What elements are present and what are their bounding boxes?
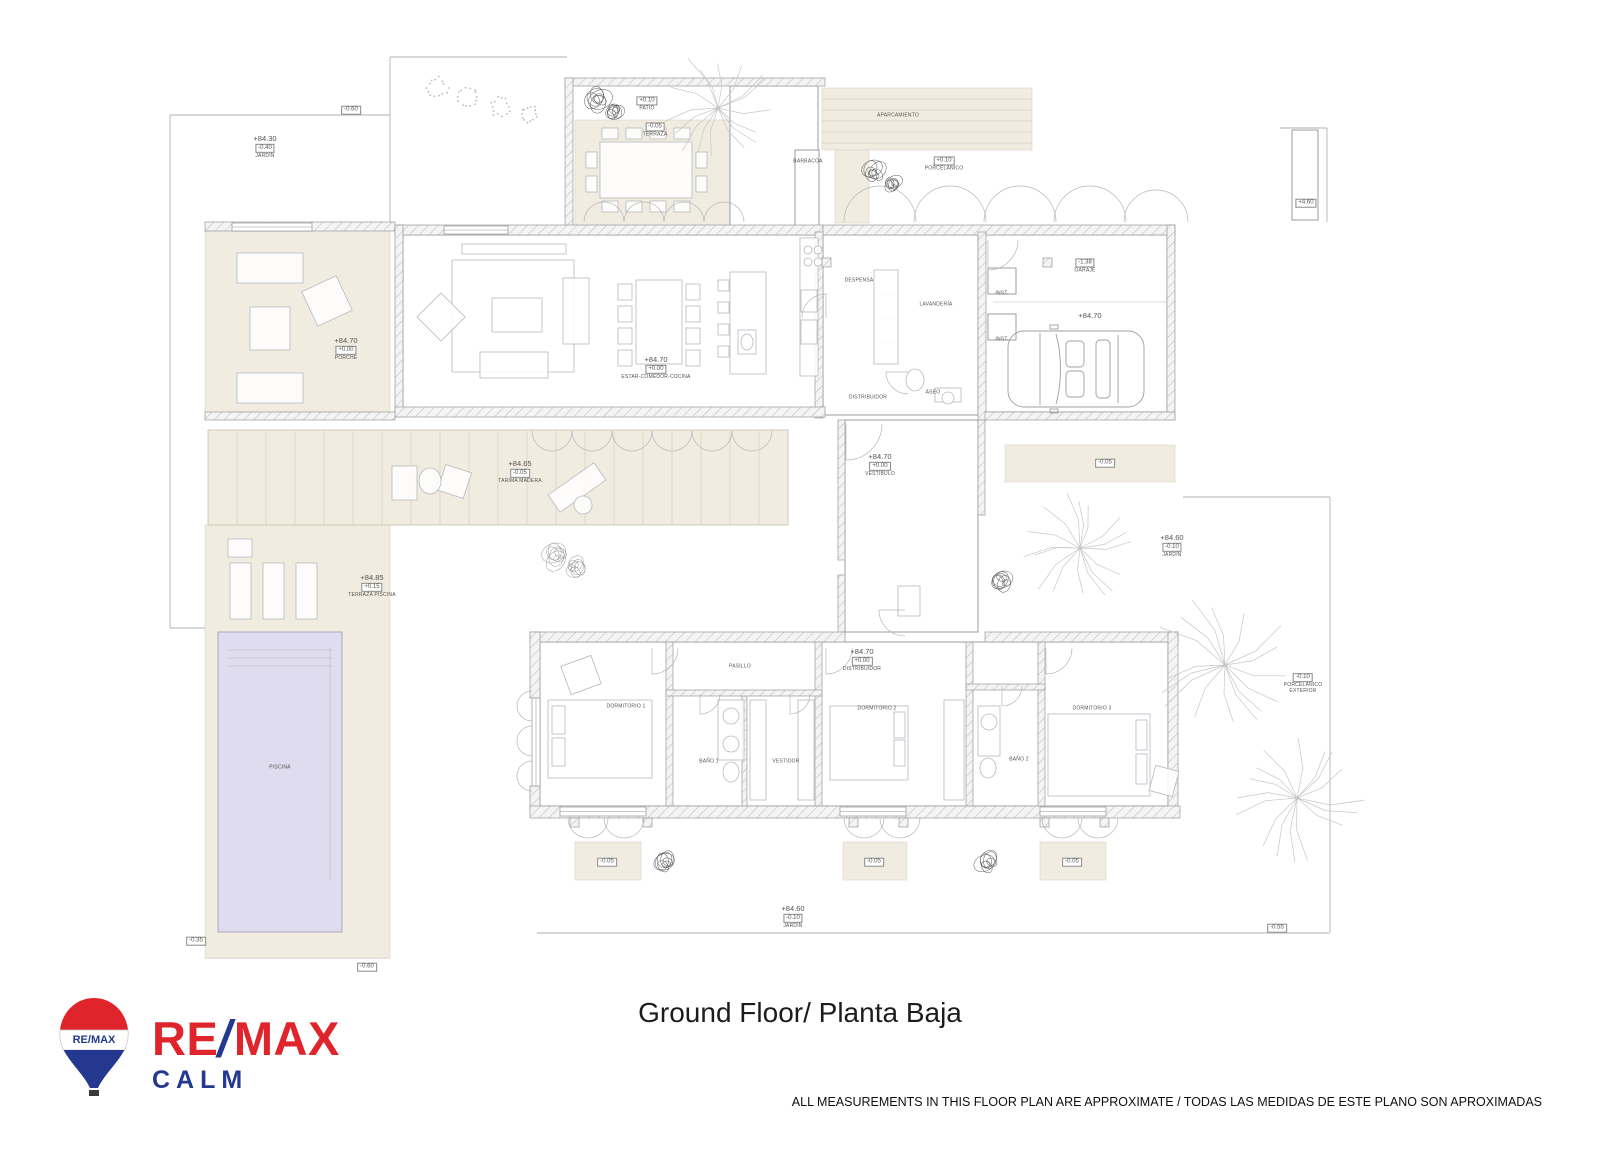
wall [1167, 225, 1175, 420]
wall [966, 642, 973, 806]
balloon-text: RE/MAX [73, 1034, 116, 1046]
wall [838, 575, 845, 635]
wall [985, 412, 1175, 420]
tree-branches [1225, 626, 1281, 665]
shrub-dots [474, 103, 476, 105]
wall [530, 632, 540, 698]
shrub-dots [448, 87, 450, 89]
shrub-dots [469, 105, 471, 107]
wall [823, 225, 1175, 235]
balloon-basket [89, 1090, 99, 1096]
tree-branches [1192, 600, 1225, 665]
furniture [906, 369, 924, 391]
door-arc [604, 818, 644, 838]
pool-water [218, 632, 342, 932]
furniture [942, 392, 954, 404]
shrub-dots [532, 119, 534, 121]
furniture [237, 253, 303, 283]
furniture [898, 586, 920, 616]
furniture [626, 128, 642, 139]
room [988, 268, 1016, 294]
furniture [894, 740, 905, 766]
shrub-dots [494, 101, 496, 103]
wall [978, 232, 986, 420]
shrub-dots [527, 122, 529, 124]
shrub-dots [501, 116, 503, 118]
tree-branches [1195, 665, 1226, 717]
outdoor-area [843, 842, 907, 880]
shrub-dots [523, 119, 525, 121]
page-title: Ground Floor/ Planta Baja [0, 997, 1600, 1029]
furniture [296, 563, 317, 619]
tree-branches [1080, 542, 1131, 550]
furniture [263, 563, 284, 619]
furniture [650, 128, 666, 139]
shrub-dots [460, 89, 462, 91]
tree-branches [1035, 548, 1081, 556]
shrub-dots [476, 96, 478, 98]
furniture [894, 712, 905, 738]
shrub-dots [462, 104, 464, 106]
wall [899, 818, 908, 827]
outdoor-area [1005, 445, 1175, 482]
furniture [480, 352, 548, 378]
shrub-dots [506, 113, 508, 115]
furniture [230, 563, 251, 619]
plant-scribble [882, 177, 900, 195]
tree-branches [1225, 665, 1278, 702]
furniture [978, 706, 1000, 756]
plant-scribble [564, 559, 588, 580]
shrub-dots [458, 91, 460, 93]
wall [395, 407, 825, 417]
furniture [730, 272, 766, 374]
furniture [618, 350, 632, 366]
shrub-dots [475, 100, 477, 102]
furniture [419, 468, 441, 494]
door-arc [984, 186, 1056, 222]
shrub-dots [469, 88, 471, 90]
floor-plan: +84.30-0.40JARDÍN-0.60+0.10PATIO-0.05TER… [0, 0, 1600, 985]
furniture [804, 258, 812, 266]
outdoor-area [575, 842, 641, 880]
wall [966, 684, 1045, 690]
tree-branches [1043, 507, 1080, 549]
shrub-dots [457, 96, 459, 98]
tree-branches [1250, 779, 1297, 798]
wall [666, 642, 673, 806]
furniture [618, 328, 632, 344]
furniture [563, 278, 589, 344]
furniture [718, 346, 729, 357]
wall [838, 420, 845, 560]
furniture [814, 258, 822, 266]
wall [1038, 642, 1045, 806]
shrub-dots [527, 107, 529, 109]
shrub-dots [522, 117, 524, 119]
shrub-dots [493, 114, 495, 116]
furniture [804, 246, 812, 254]
wall [565, 78, 573, 230]
furniture [600, 142, 692, 198]
furniture [1136, 754, 1147, 784]
shrub-dots [534, 106, 536, 108]
furniture [981, 714, 997, 730]
door-arc [914, 186, 986, 222]
tree-branches [1237, 793, 1297, 798]
furniture [392, 466, 417, 500]
tree-branches [1212, 608, 1225, 665]
shrub-dots [505, 98, 507, 100]
furniture [618, 284, 632, 300]
shrub-dots [536, 116, 538, 118]
shrub-dots [438, 76, 440, 78]
wall [205, 412, 395, 420]
plant-scribble [538, 539, 568, 566]
shrub-dots [431, 80, 433, 82]
shrub-dots [433, 95, 435, 97]
tree-branches [1023, 547, 1080, 557]
furniture [237, 373, 303, 403]
furniture [723, 762, 739, 782]
wall [570, 818, 579, 827]
shrub-dots [509, 110, 511, 112]
furniture [750, 700, 766, 800]
shrub-dots [457, 100, 459, 102]
shrub-dots [426, 87, 428, 89]
furniture [552, 706, 565, 734]
furniture [686, 350, 700, 366]
furniture [874, 270, 898, 364]
furniture [798, 700, 814, 800]
tree-branches [1028, 532, 1081, 549]
wall [1040, 818, 1049, 827]
shrub-dots [535, 113, 537, 115]
furniture [944, 700, 964, 800]
shrub-dots [442, 80, 444, 82]
shrub-dots [492, 106, 494, 108]
shrub-dots [429, 83, 431, 85]
tree-branches [1236, 798, 1297, 815]
wall [1100, 818, 1109, 827]
furniture [723, 708, 739, 724]
plant-scribble [866, 158, 889, 182]
shrub-dots [474, 89, 476, 91]
outdoor-area [835, 150, 869, 223]
shrub-dots [493, 110, 495, 112]
furniture [228, 539, 252, 557]
tree-branches [1297, 798, 1308, 861]
outdoor-area [1040, 842, 1106, 880]
furniture [718, 280, 729, 291]
swimming-pool [218, 632, 342, 932]
wall [1043, 258, 1052, 267]
furniture [696, 152, 707, 168]
furniture [696, 176, 707, 192]
furniture [492, 298, 542, 332]
wall [822, 258, 831, 267]
shrub-dots [522, 109, 524, 111]
shrub-dots [434, 79, 436, 81]
tree-branches [1080, 548, 1120, 574]
tree-branches [1053, 548, 1080, 591]
door-arc [1124, 190, 1188, 222]
shrub-dots [529, 120, 531, 122]
tree-branches [1080, 548, 1112, 591]
furniture [686, 284, 700, 300]
furniture [462, 244, 566, 254]
wall [985, 632, 1178, 642]
wall [666, 690, 822, 696]
furniture [650, 201, 666, 212]
shrub-dots [490, 102, 492, 104]
furniture [618, 306, 632, 322]
shrub-dots [501, 97, 503, 99]
tree-branches [1225, 647, 1277, 665]
shrub-dots [429, 94, 431, 96]
furniture [686, 306, 700, 322]
furniture [980, 758, 996, 778]
room [795, 150, 819, 228]
shrub-dots [508, 106, 510, 108]
door-arc [1054, 186, 1126, 222]
tree-branches [1297, 738, 1303, 798]
furniture [718, 302, 729, 313]
furniture [814, 246, 822, 254]
shrub-dots [441, 93, 443, 95]
tree-branches [1080, 532, 1126, 548]
furniture [741, 334, 753, 350]
wall [530, 632, 845, 642]
shrub-dots [530, 106, 532, 108]
shrub-dots [427, 91, 429, 93]
pergola-area [822, 88, 1032, 150]
shrub-dots [523, 109, 525, 111]
room [1292, 130, 1318, 220]
furniture [552, 738, 565, 766]
shrub-dots [497, 113, 499, 115]
wall [978, 420, 985, 515]
tree-branches [1224, 665, 1233, 722]
shrub-dots [475, 91, 477, 93]
plant-scribble [613, 107, 620, 112]
wall [395, 225, 403, 417]
tree-branches [1277, 798, 1297, 856]
wall [643, 818, 652, 827]
footer: RE/MAX RE/MAX CALM Ground Floor/ Planta … [0, 985, 1600, 1153]
furniture [723, 736, 739, 752]
shrub-dots [465, 87, 467, 89]
furniture [586, 152, 597, 168]
furniture [686, 328, 700, 344]
outdoor-areas [205, 88, 1175, 958]
tree-branches [1297, 798, 1364, 805]
furniture [1136, 720, 1147, 750]
furniture [801, 320, 817, 344]
shrub-dots [446, 92, 448, 94]
furniture [250, 307, 290, 350]
tree-branches [1038, 548, 1080, 589]
shrub-dots [443, 83, 445, 85]
balloon-bottom [64, 1050, 125, 1088]
furniture [636, 280, 682, 364]
furniture [718, 324, 729, 335]
shrub-dots [497, 96, 499, 98]
furniture [1048, 714, 1150, 796]
door-arc [1078, 818, 1118, 838]
shrub-dots [438, 95, 440, 97]
furniture [602, 128, 618, 139]
tree-branches [1297, 769, 1342, 798]
disclaimer-text: ALL MEASUREMENTS IN THIS FLOOR PLAN ARE … [792, 1095, 1542, 1109]
tree-branches [1067, 493, 1080, 548]
wall [565, 78, 825, 86]
furniture [674, 128, 690, 139]
wall [849, 818, 858, 827]
furniture [586, 176, 597, 192]
wall [815, 642, 822, 806]
furniture [574, 496, 592, 514]
plant-scribble [971, 852, 997, 875]
shrub-dots [534, 109, 536, 111]
brand-office-name: CALM [152, 1066, 340, 1095]
floor-plan-drawing [0, 0, 1600, 985]
door-arc [517, 726, 532, 756]
shrub-dots [465, 105, 467, 107]
shrub-dots [506, 103, 508, 105]
shrub-dots [521, 113, 523, 115]
